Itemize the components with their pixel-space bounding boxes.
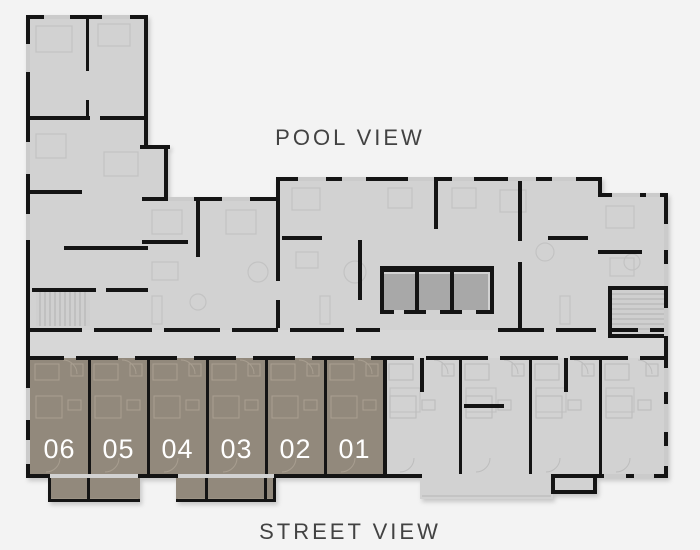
window — [102, 15, 130, 19]
window — [664, 404, 668, 432]
wall — [420, 358, 424, 392]
wall — [324, 358, 327, 474]
wall — [135, 356, 177, 360]
wall — [426, 356, 488, 360]
wall — [498, 328, 544, 332]
unit-number: 04 — [161, 434, 193, 464]
wall — [380, 266, 494, 272]
unit-06[interactable]: 06 — [30, 358, 89, 474]
unit-number: 05 — [102, 434, 134, 464]
window — [664, 446, 668, 466]
wall — [253, 356, 295, 360]
wall — [548, 236, 588, 240]
plan-canvas: POOL VIEW 060504030201 STREET VIEW — [0, 0, 700, 550]
wall — [564, 358, 568, 392]
wall — [264, 478, 267, 499]
corridor — [30, 330, 664, 358]
wall — [608, 328, 638, 332]
unit-number: 02 — [279, 434, 311, 464]
wall — [518, 177, 522, 241]
window — [664, 308, 668, 336]
wall — [518, 262, 522, 328]
window — [664, 368, 668, 392]
window — [222, 197, 250, 201]
wall — [440, 310, 462, 314]
wall — [138, 474, 178, 478]
window — [634, 474, 654, 478]
wall — [415, 272, 419, 310]
wall — [358, 240, 362, 300]
stairwell — [612, 290, 664, 334]
unit-03[interactable]: 03 — [207, 358, 266, 474]
wall — [194, 356, 236, 360]
wall — [26, 116, 90, 120]
wall — [598, 250, 642, 254]
window — [342, 177, 366, 181]
wall — [290, 328, 344, 332]
window — [408, 177, 434, 181]
wall — [164, 145, 168, 199]
window — [26, 142, 30, 174]
balcony — [48, 478, 140, 502]
wall — [48, 499, 140, 502]
wall — [599, 358, 602, 474]
wall — [265, 358, 268, 474]
wall — [142, 240, 188, 244]
wall — [274, 474, 422, 478]
unit-02[interactable]: 02 — [266, 358, 325, 474]
wall — [87, 478, 90, 499]
wall — [383, 358, 387, 474]
floor-slab — [140, 145, 168, 197]
stairwell — [36, 292, 90, 326]
window — [646, 193, 660, 197]
wall — [176, 499, 276, 502]
window — [552, 177, 576, 181]
wall — [273, 478, 276, 502]
wall — [650, 328, 664, 332]
wall — [147, 358, 150, 474]
wall — [205, 478, 208, 499]
unit-number: 03 — [220, 434, 252, 464]
window — [26, 388, 30, 420]
elevator-core — [384, 274, 415, 310]
wall — [529, 358, 532, 474]
wall — [88, 358, 91, 474]
wall — [142, 197, 280, 201]
wall — [32, 288, 96, 292]
wall — [380, 272, 384, 312]
wall — [64, 246, 148, 250]
wall — [640, 356, 664, 360]
elevator-core — [419, 274, 450, 310]
wall — [86, 15, 89, 71]
unit-number: 06 — [43, 434, 75, 464]
unit-05[interactable]: 05 — [89, 358, 148, 474]
wall — [106, 288, 148, 292]
unit-01[interactable]: 01 — [325, 358, 384, 474]
wall — [464, 404, 504, 408]
wall — [386, 356, 414, 360]
wall — [276, 300, 280, 328]
window — [604, 474, 626, 478]
wall — [556, 328, 596, 332]
balcony — [176, 478, 276, 502]
wall — [459, 358, 462, 474]
wall — [164, 328, 220, 332]
window — [26, 214, 30, 240]
wall — [282, 236, 322, 240]
window — [508, 177, 536, 181]
wall — [608, 286, 612, 338]
window — [664, 264, 668, 286]
wall — [100, 116, 148, 120]
wall — [144, 15, 148, 147]
wall — [593, 478, 597, 494]
street-view-label: STREET VIEW — [0, 519, 700, 545]
wall — [551, 490, 597, 494]
wall — [476, 310, 494, 314]
wall — [232, 328, 278, 332]
wall — [450, 272, 454, 310]
window — [612, 193, 640, 197]
unit-04[interactable]: 04 — [148, 358, 207, 474]
elevator-core — [454, 274, 488, 310]
floor-plan: 060504030201 — [0, 0, 700, 550]
wall — [206, 358, 209, 474]
unit-number: 01 — [338, 434, 370, 464]
wall — [608, 334, 668, 338]
wall — [380, 310, 394, 314]
window — [26, 440, 30, 464]
wall — [312, 356, 354, 360]
wall — [196, 201, 200, 257]
wall — [276, 201, 280, 281]
wall — [76, 356, 118, 360]
window — [664, 224, 668, 250]
window — [168, 197, 194, 201]
window — [26, 44, 30, 72]
wall — [26, 328, 82, 332]
wall — [94, 328, 152, 332]
wall — [434, 177, 438, 229]
wall — [26, 190, 82, 194]
wall — [404, 310, 426, 314]
wall — [26, 474, 50, 478]
wall — [26, 356, 64, 360]
wall — [490, 272, 494, 312]
wall — [48, 478, 51, 502]
window — [298, 177, 326, 181]
wall — [608, 286, 664, 290]
window — [452, 177, 474, 181]
building: 060504030201 — [26, 15, 668, 502]
window — [44, 15, 70, 19]
wall — [356, 328, 380, 332]
wall — [86, 100, 89, 118]
